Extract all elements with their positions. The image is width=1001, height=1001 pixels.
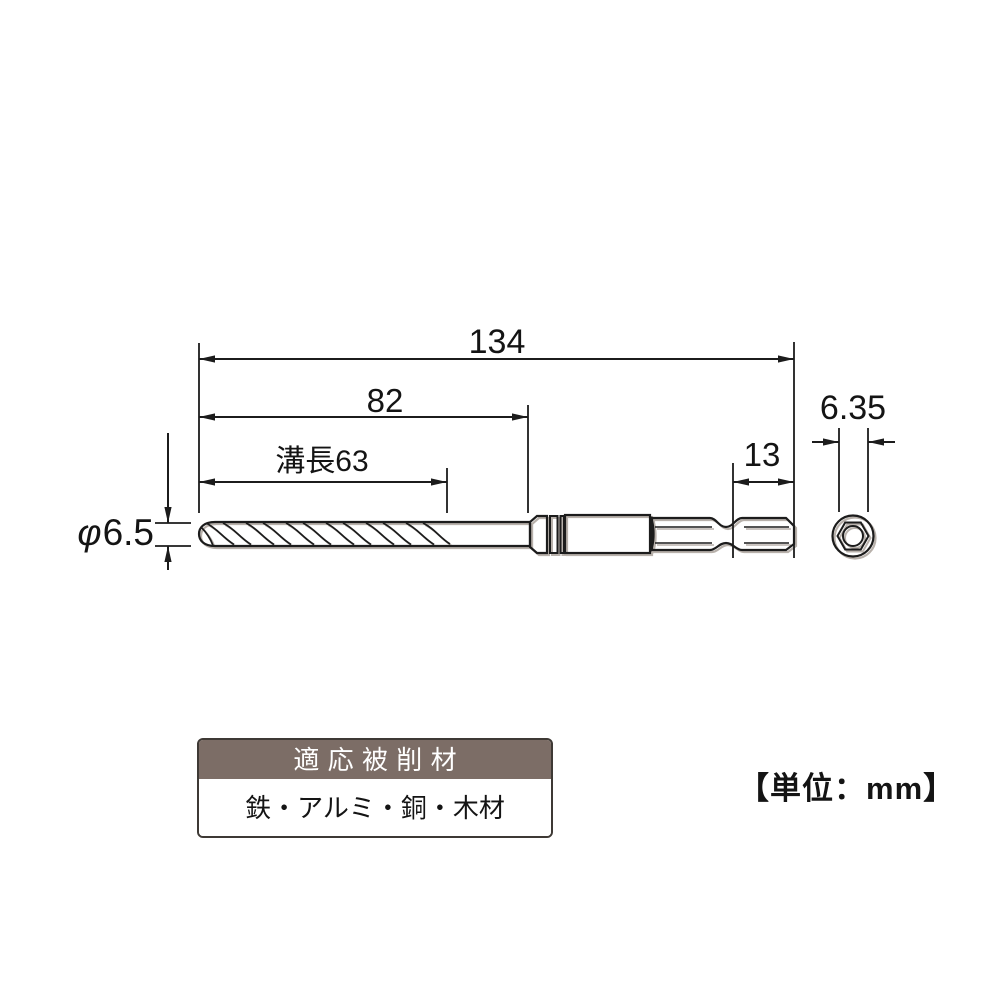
drill-bit-technical-drawing bbox=[0, 0, 1001, 1001]
end-view-inner-circle bbox=[843, 526, 863, 546]
hex-shank-outline bbox=[652, 518, 794, 550]
drill-diameter-value: 6.5 bbox=[103, 514, 154, 551]
sleeve bbox=[565, 515, 650, 553]
materials-table-value: 鉄・アルミ・銅・木材 bbox=[199, 779, 551, 836]
dimension-label-hex-width: 6.35 bbox=[793, 391, 913, 425]
hex-flat-edges bbox=[655, 527, 789, 543]
diagram-page: 134 82 溝長63 13 6.35 φ 6.5 【単位：mm】 適応被削材 … bbox=[0, 0, 1001, 1001]
collar-ring-2 bbox=[561, 516, 565, 553]
drill-flutes bbox=[206, 523, 450, 545]
dimension-label-flute-length: 溝長63 bbox=[222, 447, 422, 477]
dimension-label-overall-length: 134 bbox=[397, 325, 597, 359]
materials-table-header: 適応被削材 bbox=[199, 740, 551, 779]
dimension-label-hex-tail-length: 13 bbox=[712, 438, 812, 471]
phi-symbol: φ bbox=[77, 514, 101, 551]
collar-ring-1 bbox=[550, 516, 558, 553]
applicable-materials-table: 適応被削材 鉄・アルミ・銅・木材 bbox=[197, 738, 553, 838]
dimension-label-drill-diameter: φ 6.5 bbox=[60, 514, 154, 551]
collar-front-piece bbox=[530, 516, 547, 553]
unit-note: 【単位：mm】 bbox=[738, 773, 928, 804]
dimension-label-body-length: 82 bbox=[285, 384, 485, 417]
drill-bit-side-view bbox=[199, 515, 794, 553]
hex-shank-end-view bbox=[833, 516, 874, 557]
